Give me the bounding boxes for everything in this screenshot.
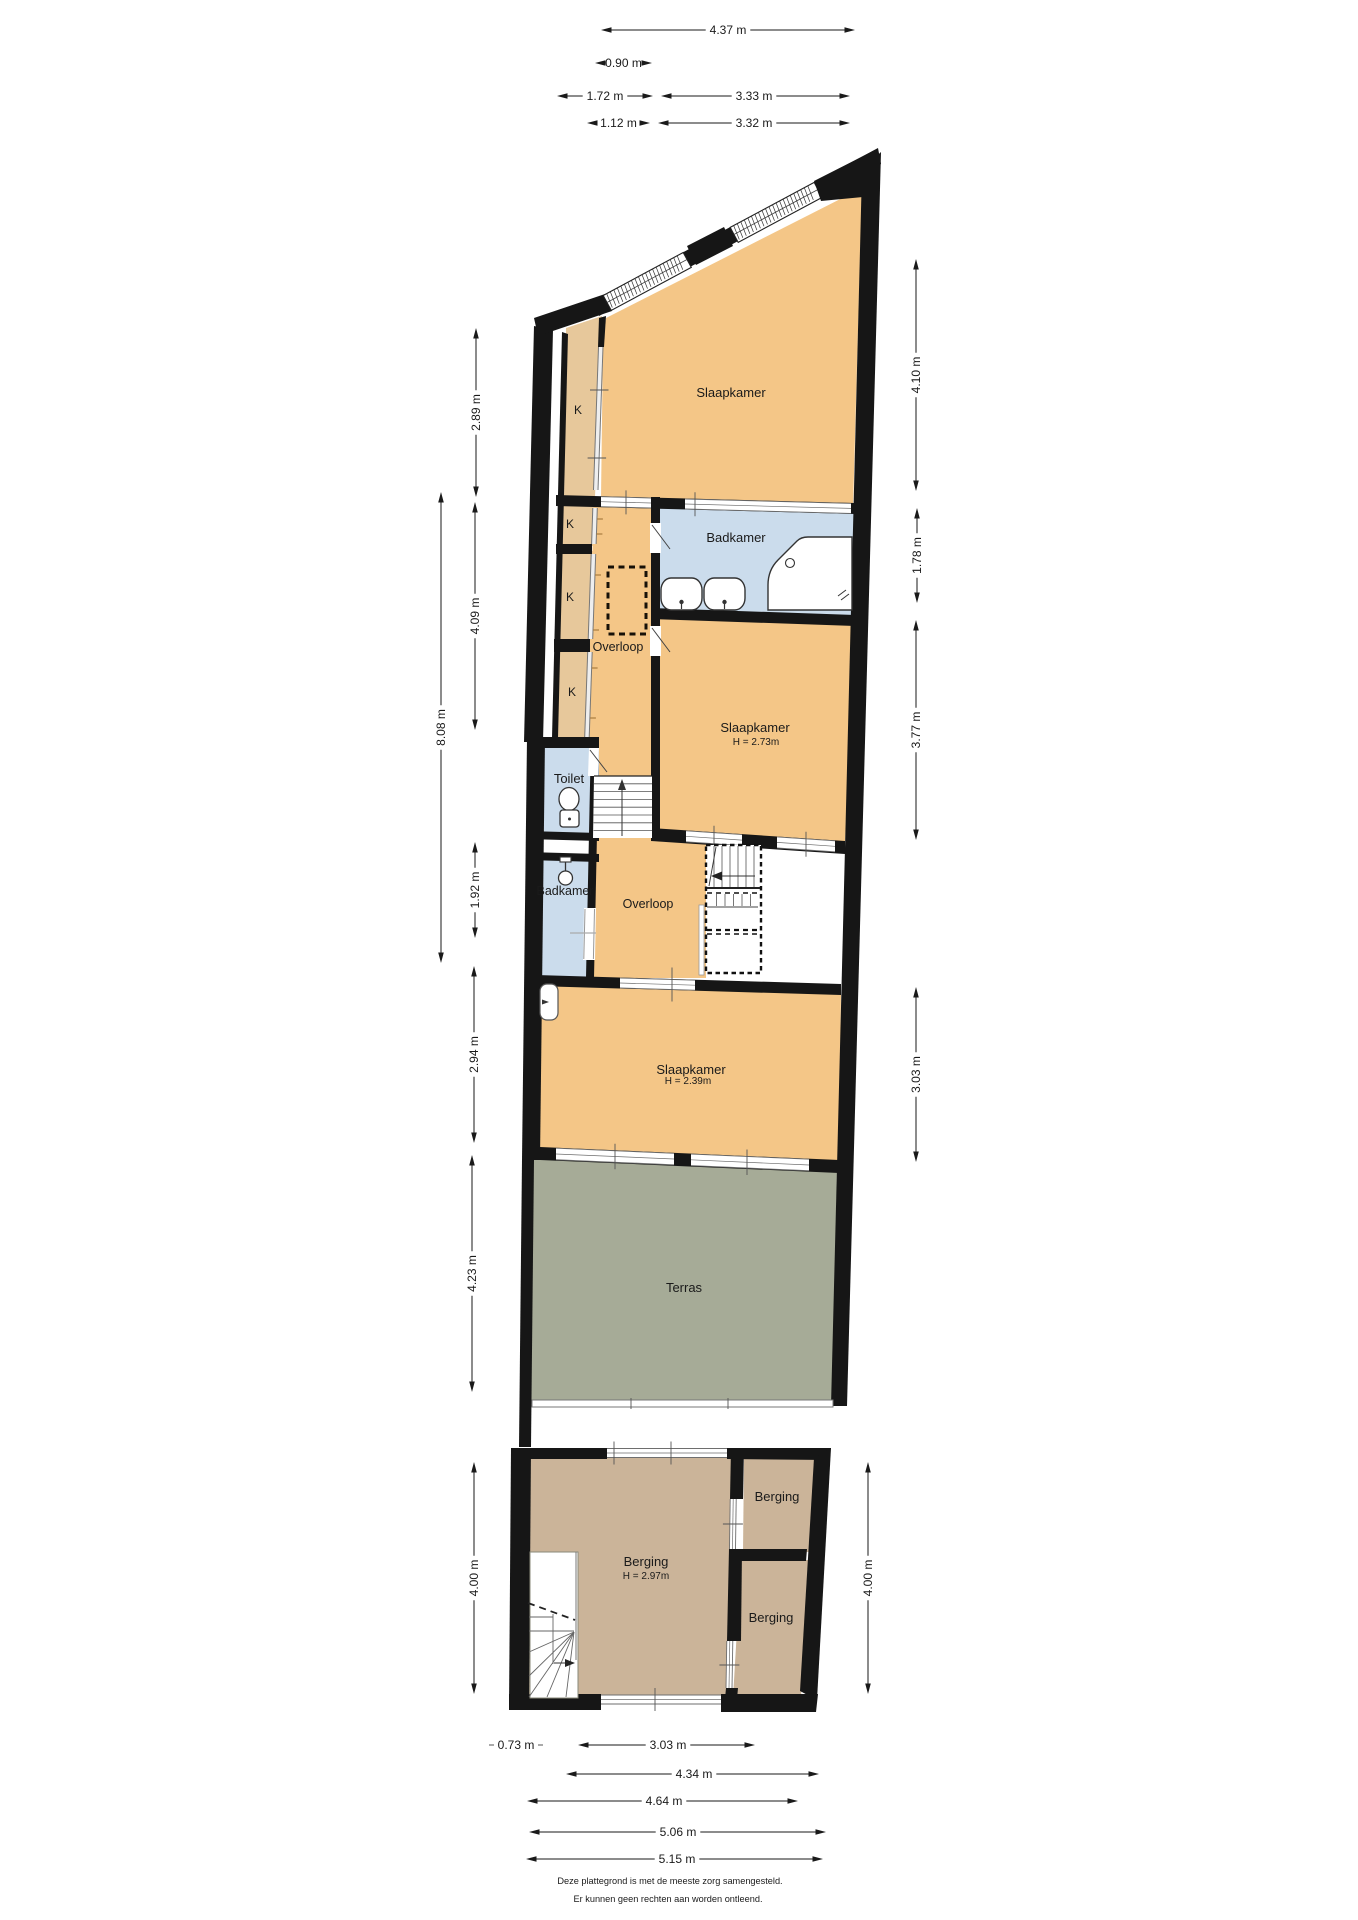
svg-text:3.03 m: 3.03 m [650, 1738, 687, 1752]
svg-text:3.03 m: 3.03 m [909, 1056, 923, 1093]
svg-text:Deze plattegrond is met de mee: Deze plattegrond is met de meeste zorg s… [557, 1876, 782, 1886]
svg-text:8.08 m: 8.08 m [434, 709, 448, 746]
svg-text:Berging: Berging [624, 1554, 669, 1569]
svg-text:1.72 m: 1.72 m [587, 89, 624, 103]
svg-text:4.23 m: 4.23 m [465, 1255, 479, 1292]
svg-text:Overloop: Overloop [593, 640, 644, 654]
svg-text:4.09 m: 4.09 m [468, 598, 482, 635]
svg-text:3.77 m: 3.77 m [909, 712, 923, 749]
svg-text:5.06 m: 5.06 m [660, 1825, 697, 1839]
svg-text:K: K [566, 590, 574, 604]
svg-text:5.15 m: 5.15 m [659, 1852, 696, 1866]
svg-text:Toilet: Toilet [554, 771, 585, 786]
svg-text:Er kunnen geen rechten aan wor: Er kunnen geen rechten aan worden ontlee… [574, 1894, 763, 1904]
svg-text:1.12 m: 1.12 m [600, 116, 637, 130]
svg-text:0.73 m: 0.73 m [498, 1738, 535, 1752]
svg-text:3.33 m: 3.33 m [736, 89, 773, 103]
svg-text:K: K [574, 403, 582, 417]
svg-text:K: K [566, 517, 574, 531]
svg-text:Berging: Berging [749, 1610, 794, 1625]
svg-text:Berging: Berging [755, 1489, 800, 1504]
svg-text:2.89 m: 2.89 m [469, 394, 483, 431]
svg-text:Slaapkamer: Slaapkamer [656, 1062, 726, 1077]
svg-text:1.78 m: 1.78 m [910, 537, 924, 574]
svg-text:4.00 m: 4.00 m [861, 1560, 875, 1597]
svg-text:Terras: Terras [666, 1280, 703, 1295]
svg-text:4.10 m: 4.10 m [909, 357, 923, 394]
svg-text:2.94 m: 2.94 m [467, 1036, 481, 1073]
svg-text:Slaapkamer: Slaapkamer [696, 385, 766, 400]
svg-text:Badkamer: Badkamer [706, 530, 766, 545]
svg-text:Badkamer: Badkamer [537, 884, 594, 898]
svg-text:4.34 m: 4.34 m [676, 1767, 713, 1781]
svg-text:K: K [568, 685, 576, 699]
svg-text:H = 2.73m: H = 2.73m [733, 737, 779, 748]
svg-text:4.37 m: 4.37 m [710, 23, 747, 37]
svg-text:4.00 m: 4.00 m [467, 1560, 481, 1597]
svg-text:H = 2.39m: H = 2.39m [665, 1076, 711, 1087]
svg-text:1.92 m: 1.92 m [468, 872, 482, 909]
svg-text:H = 2.97m: H = 2.97m [623, 1571, 669, 1582]
svg-text:0.90 m: 0.90 m [605, 56, 642, 70]
svg-text:3.32 m: 3.32 m [736, 116, 773, 130]
svg-text:Slaapkamer: Slaapkamer [720, 720, 790, 735]
svg-text:Overloop: Overloop [623, 897, 674, 911]
svg-text:4.64 m: 4.64 m [646, 1794, 683, 1808]
